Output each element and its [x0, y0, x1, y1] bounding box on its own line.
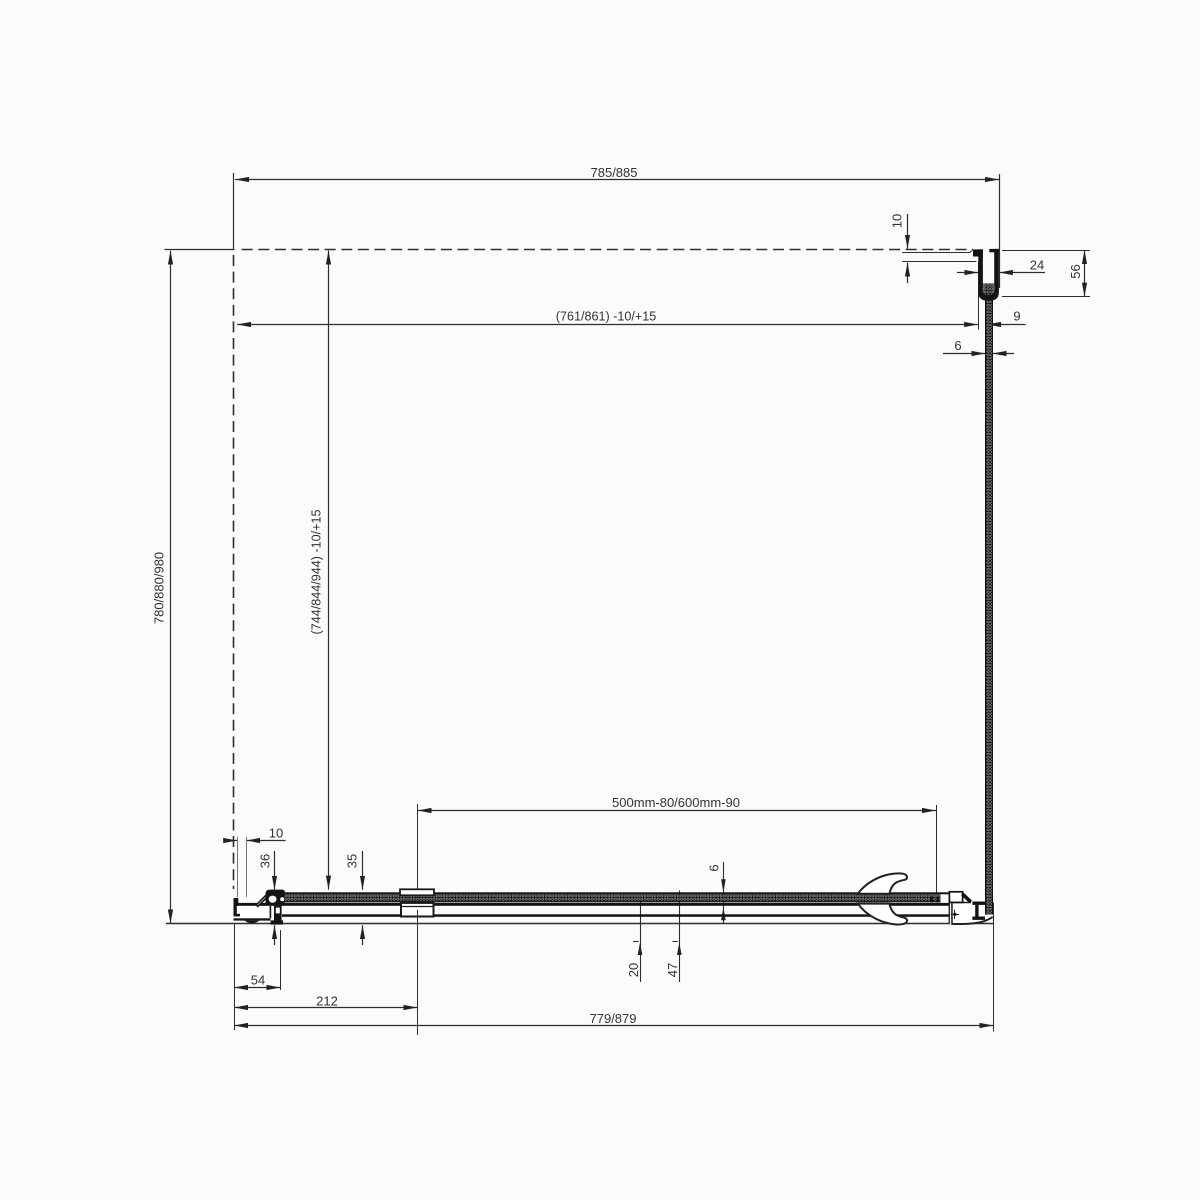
svg-text:(744/844/944) -10/+15: (744/844/944) -10/+15	[310, 510, 324, 635]
svg-text:54: 54	[251, 973, 265, 988]
svg-text:56: 56	[1068, 264, 1083, 278]
svg-text:36: 36	[258, 854, 273, 868]
svg-text:6: 6	[954, 338, 961, 353]
svg-text:35: 35	[345, 854, 360, 868]
svg-text:212: 212	[316, 994, 338, 1009]
svg-text:9: 9	[1013, 308, 1020, 323]
svg-text:10: 10	[890, 214, 905, 228]
svg-text:10: 10	[269, 825, 283, 840]
svg-text:24: 24	[1030, 258, 1044, 273]
svg-text:500mm-80/600mm-90: 500mm-80/600mm-90	[612, 795, 740, 810]
svg-text:785/885: 785/885	[591, 165, 638, 180]
svg-text:780/880/980: 780/880/980	[152, 552, 167, 624]
svg-text:(761/861) -10/+15: (761/861) -10/+15	[556, 310, 656, 324]
svg-text:779/879: 779/879	[590, 1011, 637, 1026]
svg-text:20: 20	[626, 963, 641, 977]
svg-text:6: 6	[707, 864, 722, 871]
svg-text:47: 47	[665, 963, 680, 977]
